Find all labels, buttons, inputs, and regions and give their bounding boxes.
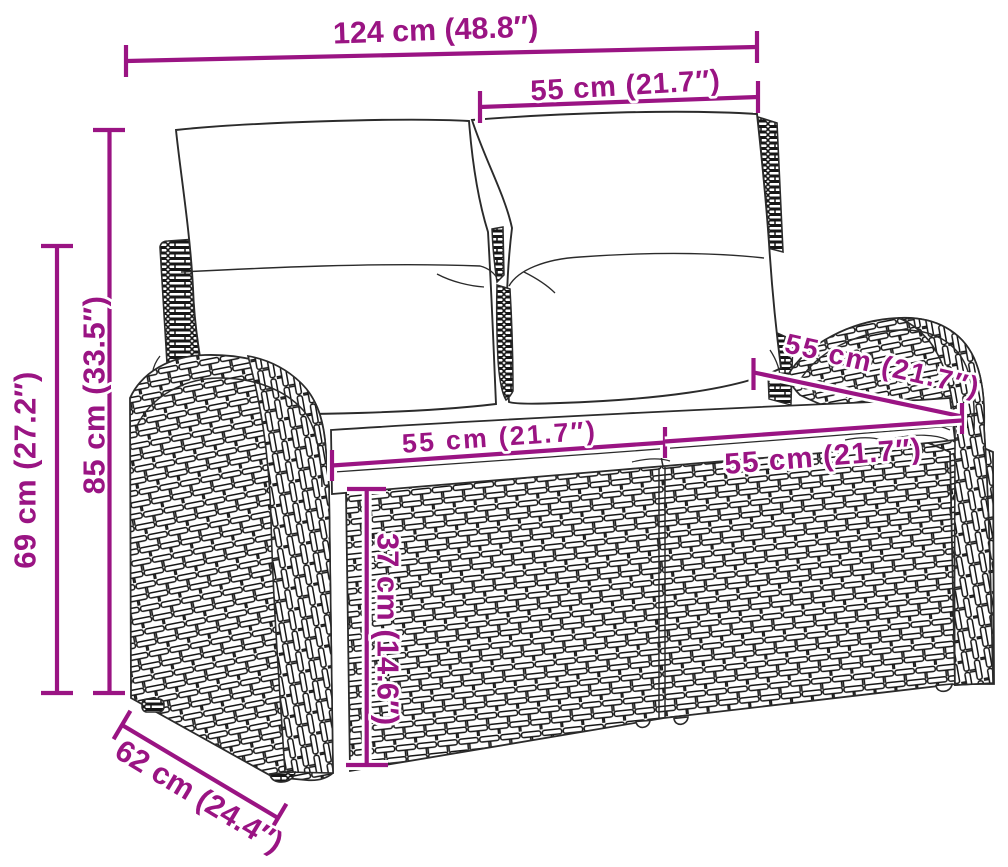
svg-text:85 cm (33.5″): 85 cm (33.5″) bbox=[77, 296, 112, 495]
svg-text:37 cm (14.6″): 37 cm (14.6″) bbox=[371, 533, 406, 725]
svg-text:69 cm (27.2″): 69 cm (27.2″) bbox=[8, 371, 43, 569]
svg-text:124 cm (48.8″): 124 cm (48.8″) bbox=[332, 9, 539, 50]
